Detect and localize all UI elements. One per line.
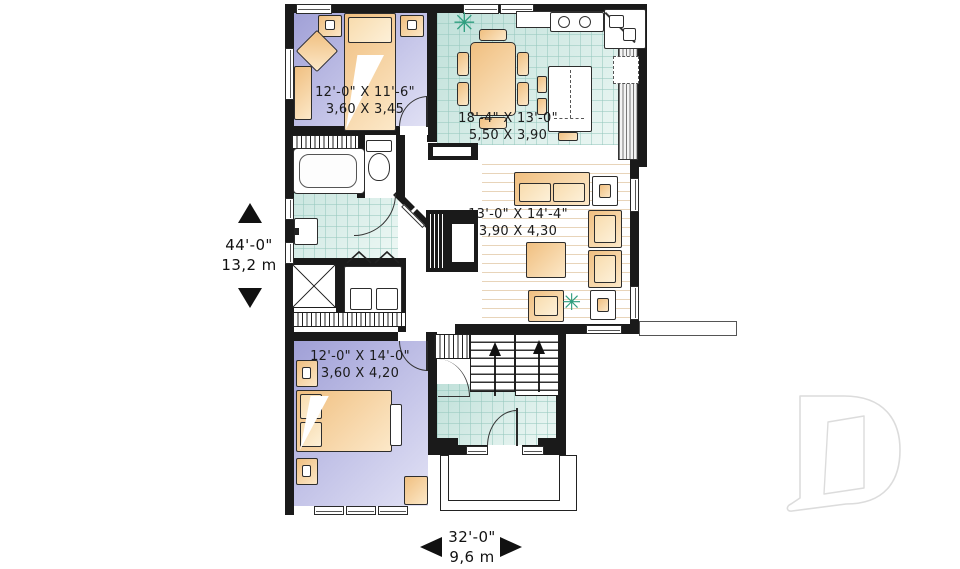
- closet-shelf-2: [376, 288, 398, 310]
- drummond-logo: [782, 388, 912, 520]
- armchair-seat: [594, 215, 616, 243]
- living-window-2: [630, 286, 639, 320]
- bedroom2-label-imperial: 12'-0" X 14'-0": [302, 348, 418, 365]
- fireplace-hatch: [430, 214, 445, 268]
- width-dimension-imperial: 32'-0": [444, 528, 500, 546]
- linen-closet-symbol: [292, 264, 336, 308]
- coffee-table-symbol: [526, 242, 566, 278]
- entry-sidelight-left: [466, 446, 488, 455]
- bifold-door-icon: [344, 250, 402, 265]
- lamp-symbol: [302, 465, 311, 477]
- dimension-arrow-down-icon: [238, 288, 262, 308]
- living-label-imperial: 13'-0" X 14'-4": [453, 206, 583, 223]
- entry-door-leaf: [516, 408, 518, 446]
- bedroom1-left-window: [285, 48, 294, 100]
- depth-dimension-imperial: 44'-0": [212, 236, 286, 254]
- toilet-bowl-symbol: [368, 153, 390, 181]
- dining-chair-symbol: [457, 82, 469, 106]
- dining-chair-symbol: [457, 52, 469, 76]
- bathtub-inner: [299, 154, 357, 188]
- kitchen-label-imperial: 18'-4" X 13'-0": [443, 110, 573, 127]
- plant-icon: ✳: [453, 8, 476, 39]
- dimension-arrow-right-icon: [500, 537, 522, 557]
- deck-ledge: [639, 321, 737, 336]
- living-window-1: [630, 178, 639, 212]
- bathroom-window-1: [285, 198, 294, 220]
- bedroom2-window-1: [314, 506, 344, 515]
- bedroom2-label-metric: 3,60 X 4,20: [302, 365, 418, 382]
- dimension-arrow-left-icon: [420, 537, 442, 557]
- floor-plan-canvas: ✳ ✳: [0, 0, 960, 569]
- bed2-bench-symbol: [390, 404, 402, 446]
- bedroom1-label-metric: 3,60 X 3,45: [300, 101, 430, 118]
- kitchen-half-wall-inset: [433, 147, 471, 156]
- bedroom2-closet-rod: [292, 312, 406, 327]
- bedroom2-door-opening: [398, 332, 426, 341]
- bedroom1-top-window: [296, 4, 332, 14]
- closet-shelf-1: [350, 288, 372, 310]
- bed1-pillow: [348, 17, 392, 43]
- dining-chair-symbol: [479, 29, 507, 41]
- bedroom1-label-imperial: 12'-0" X 11'-6": [300, 84, 430, 101]
- entry-closet-door-arc: [438, 359, 470, 397]
- side-table-decor: [597, 298, 609, 312]
- tv-cabinet-inner: [534, 296, 558, 316]
- armchair-seat: [594, 255, 616, 283]
- bedroom2-door-leaf: [426, 341, 428, 371]
- sink-basin-2: [623, 28, 636, 41]
- dishwasher-symbol: [613, 56, 639, 84]
- dresser-symbol: [404, 476, 428, 505]
- bathroom-window-2: [285, 242, 294, 264]
- porch-step: [448, 455, 560, 501]
- bedroom2-window-2: [346, 506, 376, 515]
- kitchen-dining-label: 18'-4" X 13'-0" 5,50 X 3,90: [443, 110, 573, 144]
- bedroom1-door-opening: [400, 126, 428, 135]
- stool-symbol: [537, 76, 547, 93]
- dining-table-symbol: [470, 42, 516, 116]
- burner-icon: [558, 16, 570, 28]
- entry-closet-symbol: [434, 334, 470, 359]
- sofa-cushion: [553, 183, 585, 202]
- lamp-symbol: [325, 20, 335, 30]
- side-table-decor: [599, 184, 611, 198]
- living-room-label: 13'-0" X 14'-4" 3,90 X 4,30: [453, 206, 583, 240]
- living-bottom-window: [586, 325, 622, 334]
- dining-chair-symbol: [517, 52, 529, 76]
- stairs-up-arrow-icon: [486, 340, 550, 398]
- width-dimension-metric: 9,6 m: [444, 548, 500, 566]
- sofa-cushion: [519, 183, 551, 202]
- toilet-tank-symbol: [366, 140, 392, 152]
- bedroom1-closet-rod: [291, 135, 359, 149]
- bedroom1-label: 12'-0" X 11'-6" 3,60 X 3,45: [300, 84, 430, 118]
- entry-sidelight-right: [522, 446, 544, 455]
- wall-bathroom-right: [396, 135, 405, 197]
- plant-icon: ✳: [562, 290, 581, 316]
- lamp-symbol: [407, 20, 417, 30]
- faucet-icon: [294, 228, 299, 235]
- burner-icon: [579, 16, 591, 28]
- depth-dimension-metric: 13,2 m: [212, 256, 286, 274]
- living-label-metric: 3,90 X 4,30: [453, 223, 583, 240]
- bedroom2-label: 12'-0" X 14'-0" 3,60 X 4,20: [302, 348, 418, 382]
- wall-closet-divider: [336, 258, 344, 314]
- bedroom2-window-3: [378, 506, 408, 515]
- entry-door-opening: [488, 445, 522, 455]
- wall-bedroom1-kitchen: [427, 4, 437, 142]
- dining-chair-symbol: [517, 82, 529, 106]
- sink-basin-1: [609, 15, 624, 28]
- dimension-arrow-up-icon: [238, 203, 262, 223]
- kitchen-label-metric: 5,50 X 3,90: [443, 127, 573, 144]
